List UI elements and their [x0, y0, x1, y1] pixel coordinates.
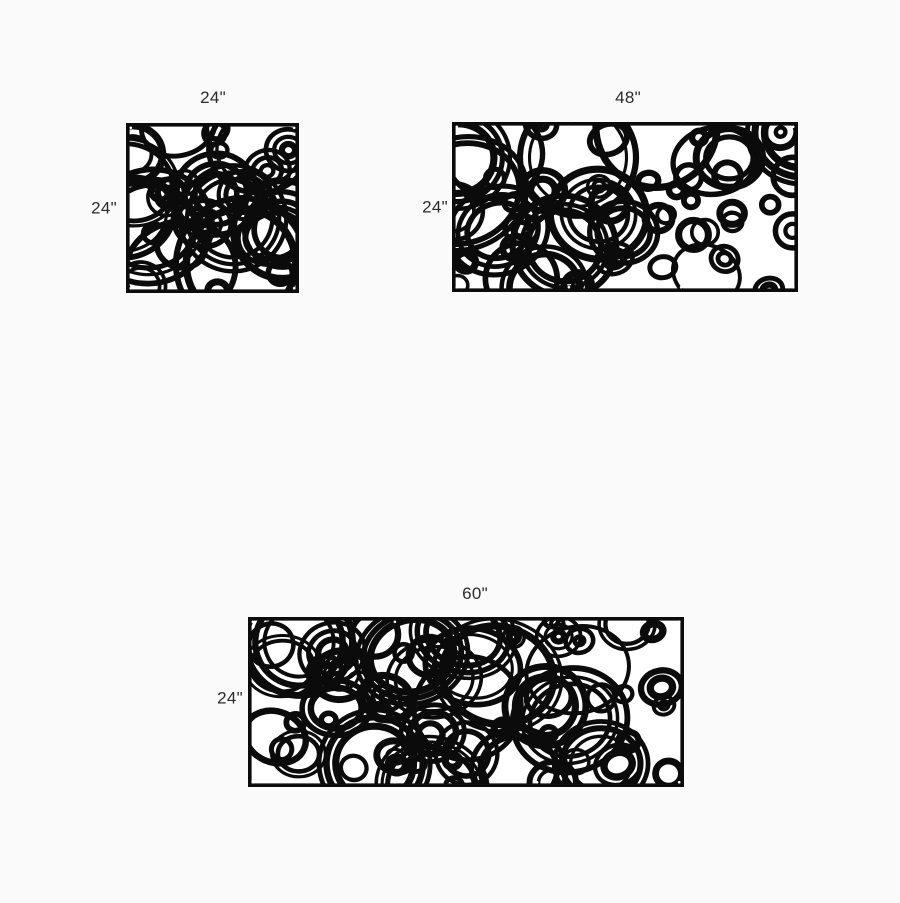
height-dimension-label: 24"	[422, 198, 448, 217]
panel-pattern-svg	[126, 123, 299, 293]
product-dimensions-diagram: 24" 24" 48" 24" 60" 24"	[0, 0, 900, 903]
mounting-hole	[568, 286, 571, 289]
width-dimension-label: 48"	[615, 88, 641, 107]
height-dimension-label: 24"	[91, 199, 117, 218]
height-dimension-label: 24"	[217, 689, 243, 708]
mounting-hole	[680, 126, 683, 129]
mounting-hole	[252, 621, 255, 624]
mounting-hole	[130, 287, 133, 290]
decorative-screen-panel-60x24	[248, 617, 684, 787]
mounting-hole	[456, 126, 459, 129]
mounting-hole	[678, 621, 681, 624]
mounting-hole	[293, 287, 296, 290]
mounting-hole	[568, 126, 571, 129]
mounting-hole	[456, 286, 459, 289]
panel-pattern-svg	[452, 122, 798, 292]
mounting-hole	[293, 127, 296, 130]
mounting-hole	[394, 781, 397, 784]
mounting-hole	[792, 126, 795, 129]
mounting-hole	[678, 781, 681, 784]
decorative-screen-panel-48x24	[452, 122, 798, 292]
mounting-hole	[536, 781, 539, 784]
mounting-hole	[130, 127, 133, 130]
mounting-hole	[536, 621, 539, 624]
mounting-hole	[680, 286, 683, 289]
width-dimension-label: 24"	[200, 88, 226, 107]
panel-pattern-svg	[248, 617, 684, 787]
decorative-screen-panel-24x24	[126, 123, 299, 293]
mounting-hole	[792, 286, 795, 289]
mounting-hole	[394, 621, 397, 624]
mounting-hole	[252, 781, 255, 784]
width-dimension-label: 60"	[462, 584, 488, 603]
